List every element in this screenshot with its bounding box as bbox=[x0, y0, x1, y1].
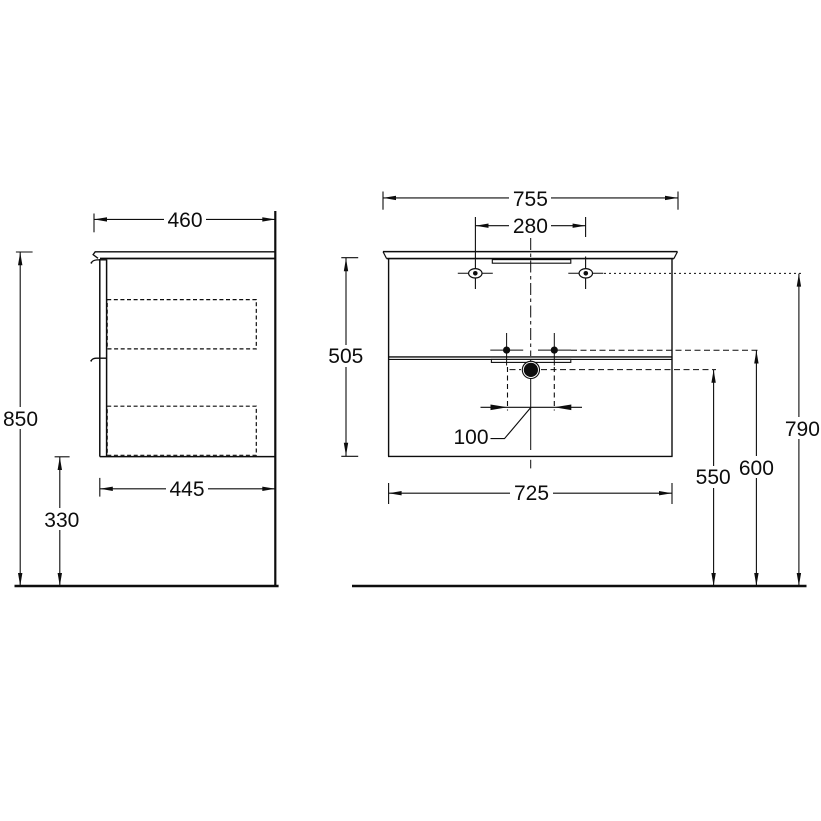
svg-text:100: 100 bbox=[453, 426, 488, 449]
svg-text:790: 790 bbox=[785, 418, 820, 441]
svg-text:460: 460 bbox=[167, 209, 202, 232]
svg-text:330: 330 bbox=[44, 509, 79, 532]
svg-text:280: 280 bbox=[513, 215, 548, 238]
svg-text:725: 725 bbox=[514, 482, 549, 505]
svg-text:505: 505 bbox=[328, 345, 363, 368]
svg-text:755: 755 bbox=[513, 188, 548, 211]
svg-text:850: 850 bbox=[3, 408, 38, 431]
svg-text:445: 445 bbox=[169, 478, 204, 501]
svg-text:550: 550 bbox=[696, 466, 731, 489]
svg-text:600: 600 bbox=[739, 457, 774, 480]
